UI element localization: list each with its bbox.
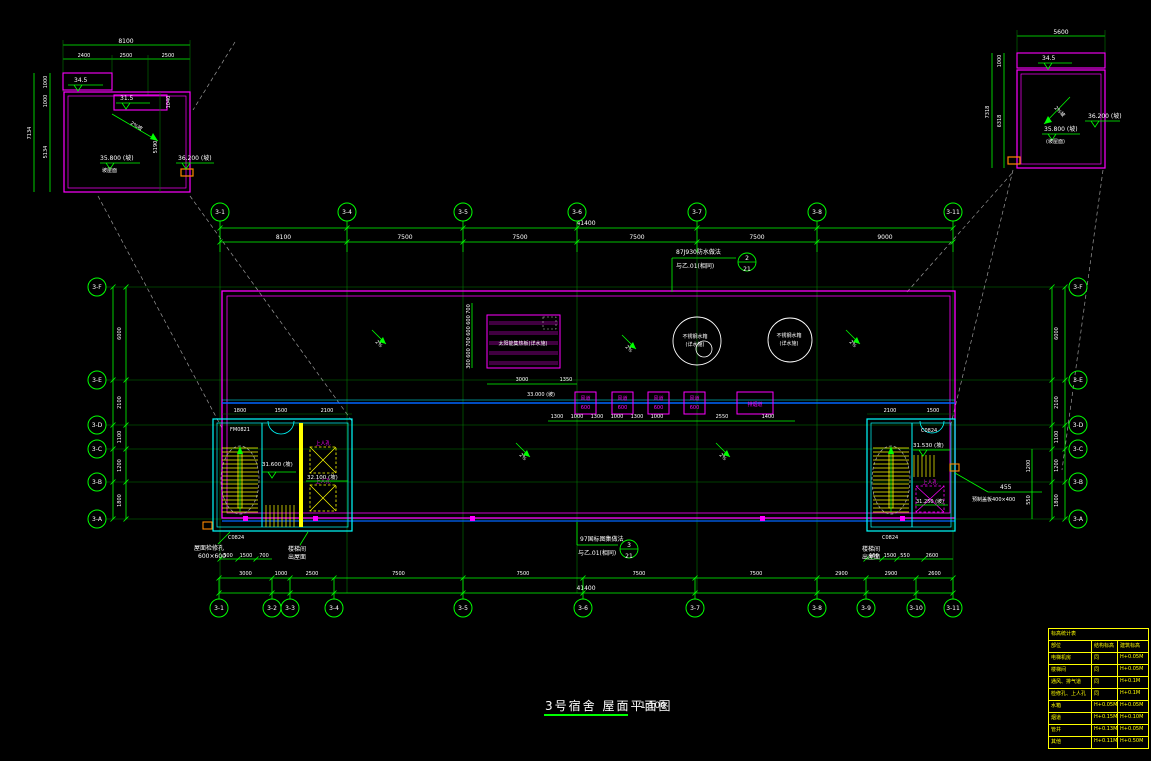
dim-text: 1300	[591, 414, 604, 420]
window-tag: C0824	[882, 535, 898, 541]
dim-text: 1040	[166, 96, 172, 109]
elevation-value: 36.200 (坡)	[178, 154, 212, 162]
callout-text: 87J930防水做法	[676, 248, 721, 256]
dim-text: 600	[466, 315, 472, 325]
grid-bubble-label: 3-10	[909, 605, 923, 612]
table-cell: H+0.05M	[1117, 653, 1146, 664]
dim-text: 600	[466, 326, 472, 336]
tank-label: 不锈钢水箱	[682, 333, 707, 340]
table-cell: 通风、排气道	[1049, 677, 1091, 688]
elevation-value: 32.100 (坡)	[307, 473, 338, 481]
dim-text: 1000	[43, 95, 49, 108]
door-tag: FM0821	[230, 427, 250, 433]
vent-box-label: 600	[690, 405, 700, 411]
dim-text: 550	[900, 553, 910, 559]
dim-text: 2100	[1054, 396, 1060, 409]
vent-box-label: 风道	[653, 395, 663, 402]
dim-text: 1300	[631, 414, 644, 420]
elevation-value: 31.600 (坡)	[262, 460, 293, 468]
dim-text: 3000	[516, 377, 529, 383]
dim-text: 7500	[749, 234, 764, 241]
grid-bubble-label: 3-9	[861, 605, 871, 612]
dim-text: 2500	[306, 571, 319, 577]
grid-bubble-label: 3-5	[458, 209, 468, 216]
grid-bubble-label: 3-C	[1073, 446, 1083, 453]
core-note: 出屋面	[862, 553, 880, 561]
table-cell: H+0.1M	[1117, 677, 1146, 688]
vent-box-label: 排烟道	[747, 401, 762, 408]
core-note: 600×600	[198, 553, 226, 560]
slope-label: 2%坡	[129, 120, 144, 133]
elevation-note: 坡屋面	[102, 167, 117, 174]
grid-bubble-label: 3-A	[92, 516, 103, 523]
table-cell: H+0.13M	[1091, 725, 1117, 736]
grid-bubble-label: 3-E	[92, 377, 102, 384]
grid-bubble-label: 3-3	[285, 605, 295, 612]
dim-text: 2600	[926, 553, 939, 559]
cad-canvas: 8100750075007500750090004140030001000250…	[0, 0, 1151, 761]
dim-text: 1500	[884, 553, 897, 559]
grid-bubble-label: 3-11	[946, 209, 960, 216]
grid-bubble-label: 3-1	[215, 209, 225, 216]
elevation-value: 34.5	[74, 77, 88, 84]
dim-text: 1100	[117, 431, 123, 444]
callout-number: 3	[627, 542, 631, 549]
table-cell: H+0.05M	[1117, 725, 1146, 736]
vent-box-label: 风道	[617, 395, 627, 402]
grid-bubble-label: 3-4	[342, 209, 352, 216]
dim-text: 7500	[750, 571, 763, 577]
dim-text: 2550	[716, 414, 729, 420]
grid-bubble-label: 3-D	[1073, 422, 1084, 429]
dim-text: 1200	[1026, 460, 1032, 473]
callout-text: 97国标图集做法	[580, 535, 624, 543]
tank-label: 不锈钢水箱	[776, 332, 801, 339]
table-cell: 建筑标高	[1117, 641, 1146, 652]
table-row: 管井H+0.13MH+0.05M	[1049, 724, 1148, 736]
table-cell: 其他	[1049, 737, 1091, 748]
dim-text: 1200	[1054, 459, 1060, 472]
grid-bubble-label: 3-6	[578, 605, 588, 612]
table-cell: 楼梯间	[1049, 665, 1091, 676]
table-cell: H+0.50M	[1117, 737, 1146, 748]
dim-text: 1800	[1054, 494, 1060, 507]
table-cell: 同	[1091, 689, 1117, 700]
dim-text: 2500	[162, 53, 175, 59]
tank-label: (详水施)	[780, 340, 799, 347]
dim-text: 8100	[118, 38, 133, 45]
dim-text: 1350	[560, 377, 573, 383]
table-cell: 检修孔、上人孔	[1049, 689, 1091, 700]
dim-text: 2900	[835, 571, 848, 577]
table-cell: 标高统计表	[1049, 629, 1146, 640]
callout-text: 与乙.01(相同)	[676, 262, 714, 270]
core-note: 楼梯间	[862, 545, 880, 553]
dim-text: 7500	[392, 571, 405, 577]
grid-bubble-label: 3-B	[92, 479, 102, 486]
dim-text: 7500	[397, 234, 412, 241]
elevation-value: 31.530 (坡)	[913, 441, 944, 449]
window-tag: C0824	[228, 535, 244, 541]
vent-box-label: 600	[618, 405, 628, 411]
grid-bubble-label: 3-5	[458, 605, 468, 612]
dim-text: 1000	[275, 571, 288, 577]
dim-text: 1300	[551, 414, 564, 420]
hatch-label: 上人孔	[922, 479, 937, 486]
dim-text: 6318	[997, 115, 1003, 128]
table-row: 水箱H+0.05MH+0.05M	[1049, 700, 1148, 712]
dim-text: 1200	[117, 459, 123, 472]
water-tanks: 不锈钢水箱 (详水施) 不锈钢水箱 (详水施)	[673, 317, 812, 365]
grid-bubble-label: 3-F	[92, 284, 102, 291]
drawing-svg: 8100750075007500750090004140030001000250…	[0, 0, 1151, 761]
table-row: 标高统计表	[1049, 629, 1148, 640]
elevation-value: 36.200 (坡)	[1088, 112, 1122, 120]
grid-bubble-label: 3-A	[1073, 516, 1084, 523]
dim-text: 1500	[275, 408, 288, 414]
grid-bubble-label: 3-F	[1073, 284, 1083, 291]
dim-text: 1400	[762, 414, 775, 420]
dim-text: 5190	[153, 141, 159, 154]
core-note: 楼梯间	[288, 545, 306, 553]
tag: C0824	[921, 428, 937, 434]
elevation-value: 33.000 (坡)	[527, 391, 555, 398]
grid-bubble-label: 3-2	[267, 605, 277, 612]
table-row: 其他H+0.11MH+0.50M	[1049, 736, 1148, 748]
elevation-note: (坡屋面)	[1046, 138, 1065, 145]
solar-label: 太阳能集热板(详水施)	[499, 340, 548, 347]
dim-text: 550	[1026, 495, 1032, 505]
callout-sheet: 21	[743, 266, 751, 273]
dim-text: 2100	[117, 396, 123, 409]
vent-boxes-layer: 风道600风道600风道600风道600排烟道13001000130010001…	[548, 392, 795, 421]
dim-text: 1000	[651, 414, 664, 420]
slope-arrows-layer: 2%2%2%2%2%	[372, 330, 860, 462]
dim-total: 41400	[576, 585, 595, 592]
elevation-value: 31.5	[120, 95, 134, 102]
grid-bubble-label: 3-8	[812, 605, 822, 612]
title-underline	[544, 714, 628, 716]
dim-text: 1000	[997, 55, 1003, 68]
table-row: 烟道H+0.15MH+0.10M	[1049, 712, 1148, 724]
callout-top: 87J930防水做法 与乙.01(相同) 2 21	[672, 248, 756, 292]
table-row: 楼梯间同H+0.05M	[1049, 664, 1148, 676]
table-cell: 烟道	[1049, 713, 1091, 724]
dim-text: 7500	[517, 571, 530, 577]
table-cell: H+0.1M	[1117, 689, 1146, 700]
schedule-table: 标高统计表部位结构标高建筑标高电梯机房同H+0.05M楼梯间同H+0.05M通风…	[1048, 628, 1149, 749]
elevation-value: 34.5	[1042, 55, 1056, 62]
table-row: 检修孔、上人孔同H+0.1M	[1049, 688, 1148, 700]
left-stair-core: FM0821 31.600 (坡) 上人孔 上人孔 32.100 (坡) C08…	[194, 408, 352, 561]
table-row: 通风、排气道同H+0.1M	[1049, 676, 1148, 688]
hatch-label: 上人孔	[315, 440, 330, 447]
grid-bubble-label: 3-6	[572, 209, 582, 216]
table-cell: 同	[1091, 677, 1117, 688]
dim-text: 2100	[884, 408, 897, 414]
grid-bubble-label: 3-8	[812, 209, 822, 216]
dim-text: 6000	[117, 327, 123, 340]
table-cell: 管井	[1049, 725, 1091, 736]
callout-number: 2	[745, 255, 749, 262]
grid-bubble-label: 3-C	[92, 446, 102, 453]
dim-text: 1000	[43, 76, 49, 89]
dim-text: 1800	[117, 494, 123, 507]
table-cell: 同	[1091, 665, 1117, 676]
dim-text: 1000	[571, 414, 584, 420]
grid-bubble-label: 3-E	[1073, 377, 1083, 384]
table-cell: 水箱	[1049, 701, 1091, 712]
dim-text: 7500	[512, 234, 527, 241]
dim-text: 2500	[120, 53, 133, 59]
grid-bubble-label: 3-D	[92, 422, 103, 429]
dim-text: 2900	[885, 571, 898, 577]
note-text: 预制盖板400×400	[972, 496, 1015, 503]
dim-text: 5134	[43, 146, 49, 159]
dim-text: 1500	[927, 408, 940, 414]
dim-text: 1800	[234, 408, 247, 414]
grid-bubble-label: 3-1	[214, 605, 224, 612]
dim-text: 700	[466, 337, 472, 347]
detail-top-left: 8100 2400 2500 2500 7134 1000 1000 5134 …	[27, 38, 214, 192]
table-cell: H+0.10M	[1117, 713, 1146, 724]
table-row: 电梯机房同H+0.05M	[1049, 652, 1148, 664]
table-cell: H+0.05M	[1117, 665, 1146, 676]
dim-text: 7134	[27, 127, 33, 140]
drawing-scale: 1:100	[640, 701, 666, 711]
dim-text: 7500	[629, 234, 644, 241]
dim-text: 7318	[985, 106, 991, 119]
callout-sheet: 21	[625, 553, 633, 560]
projection-dashed-lines	[98, 42, 1103, 470]
table-cell: 结构标高	[1091, 641, 1117, 652]
dim-text: 600	[466, 348, 472, 358]
dim-text: 300	[466, 359, 472, 369]
grid-bubble-label: 3-7	[690, 605, 700, 612]
table-cell: H+0.15M	[1091, 713, 1117, 724]
dim-text: 1500	[240, 553, 253, 559]
dim-text: 700	[259, 553, 269, 559]
dim-text: 9000	[877, 234, 892, 241]
dim-text: 3000	[239, 571, 252, 577]
vent-box-label: 风道	[689, 395, 699, 402]
table-cell: 部位	[1049, 641, 1091, 652]
slope-label: 2%坡	[1053, 104, 1067, 118]
dim-text: 700	[466, 304, 472, 314]
grid-bubble-label: 3-7	[692, 209, 702, 216]
table-cell: H+0.05M	[1091, 701, 1117, 712]
table-row: 部位结构标高建筑标高	[1049, 640, 1148, 652]
vent-box-label: 600	[654, 405, 664, 411]
grid-bubble-label: 3-B	[1073, 479, 1083, 486]
table-cell: H+0.05M	[1117, 701, 1146, 712]
table-cell: 同	[1091, 653, 1117, 664]
elevation-value: 31.250 (坡)	[916, 498, 944, 505]
dim-text: 8100	[276, 234, 291, 241]
vent-box-label: 600	[581, 405, 591, 411]
dim-text: 5600	[1053, 29, 1068, 36]
dim-text: 2100	[321, 408, 334, 414]
dim-text: 2600	[928, 571, 941, 577]
dim-text: 455	[1000, 484, 1012, 491]
dim-text: 1100	[1054, 431, 1060, 444]
table-cell: 电梯机房	[1049, 653, 1091, 664]
elevation-value: 35.800 (坡)	[100, 154, 134, 162]
detail-top-right: 5600 7318 1000 6318 34.5 2%坡 35.800 (坡) …	[985, 29, 1122, 168]
core-note: 屋面检修孔	[194, 544, 224, 552]
callout-text: 与乙.01(相同)	[578, 549, 616, 557]
vent-box-label: 风道	[580, 395, 590, 402]
dim-text: 6000	[1054, 327, 1060, 340]
grid-bubble-label: 3-11	[946, 605, 960, 612]
table-cell: H+0.11M	[1091, 737, 1117, 748]
grid-bubble-label: 3-4	[329, 605, 339, 612]
dim-text: 2400	[78, 53, 91, 59]
callout-bottom: 97国标图集做法 与乙.01(相同) 3 21	[577, 522, 638, 560]
dim-text: 1000	[611, 414, 624, 420]
core-note: 出屋面	[288, 553, 306, 561]
dim-text: 7500	[633, 571, 646, 577]
elevation-value: 35.800 (坡)	[1044, 125, 1078, 133]
solar-collector: 太阳能集热板(详水施) 3000 1350	[472, 303, 577, 384]
tank-label: (详水施)	[686, 341, 705, 348]
